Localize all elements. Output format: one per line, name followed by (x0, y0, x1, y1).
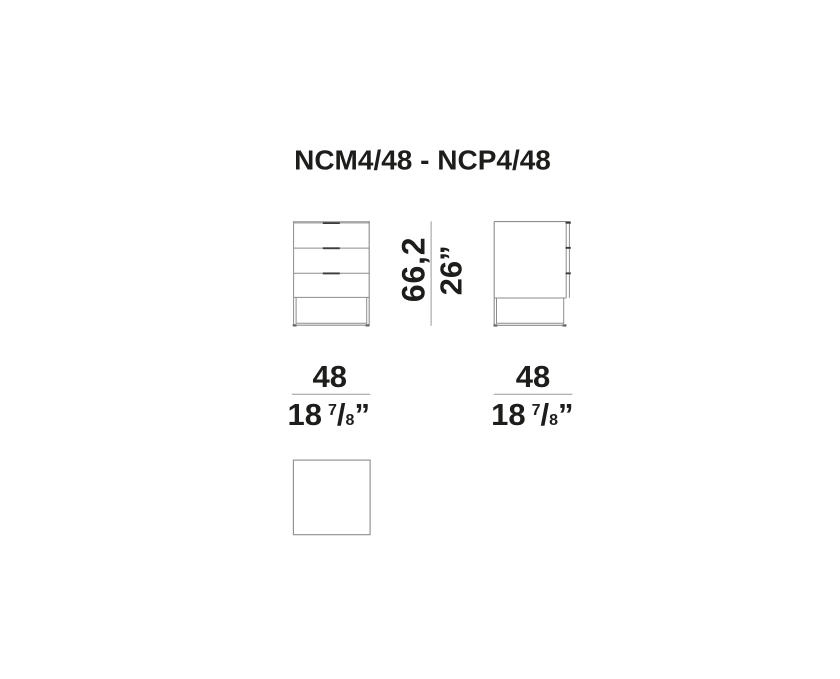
svg-text:NCM4/48 - NCP4/48: NCM4/48 - NCP4/48 (294, 145, 551, 176)
svg-text:187/8”: 187/8” (288, 397, 370, 432)
svg-text:187/8”: 187/8” (491, 397, 573, 432)
svg-text:48: 48 (516, 359, 550, 394)
svg-text:66,2: 66,2 (396, 237, 432, 302)
svg-text:26”: 26” (433, 245, 468, 295)
svg-text:48: 48 (313, 359, 347, 394)
